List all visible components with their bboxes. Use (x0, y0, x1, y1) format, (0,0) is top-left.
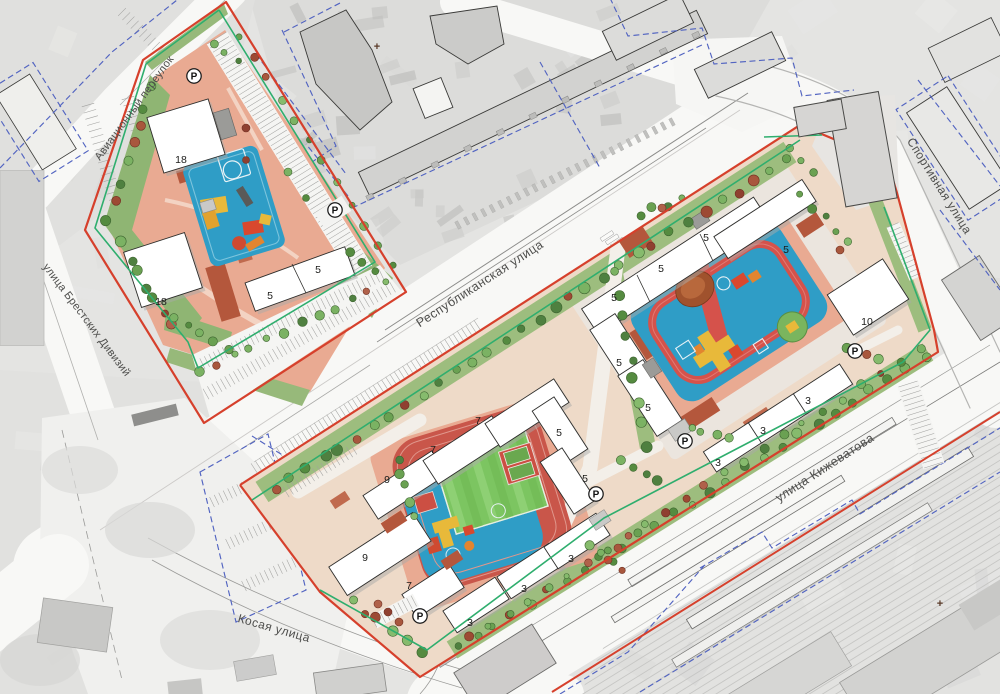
svg-text:P: P (332, 206, 339, 217)
svg-text:5: 5 (616, 357, 622, 369)
svg-text:5: 5 (611, 292, 617, 304)
svg-text:5: 5 (783, 244, 789, 256)
svg-text:3: 3 (521, 583, 527, 595)
svg-text:18: 18 (175, 154, 187, 166)
svg-text:9: 9 (362, 552, 368, 564)
svg-text:3: 3 (568, 553, 574, 565)
svg-text:3: 3 (467, 617, 473, 629)
svg-text:P: P (852, 347, 859, 358)
svg-text:P: P (593, 490, 600, 501)
svg-text:9: 9 (384, 474, 390, 486)
svg-text:P: P (682, 437, 689, 448)
svg-text:5: 5 (645, 402, 651, 414)
svg-text:18: 18 (155, 296, 167, 308)
svg-text:5: 5 (267, 290, 273, 302)
svg-text:+: + (374, 41, 380, 53)
svg-text:3: 3 (760, 425, 766, 437)
svg-text:5: 5 (658, 263, 664, 275)
svg-text:5: 5 (556, 427, 562, 439)
svg-text:3: 3 (715, 457, 721, 469)
svg-text:P: P (191, 72, 198, 83)
svg-text:3: 3 (805, 395, 811, 407)
svg-text:P: P (417, 612, 424, 623)
svg-text:7: 7 (406, 580, 412, 592)
svg-text:5: 5 (703, 232, 709, 244)
svg-text:10: 10 (861, 316, 873, 328)
svg-text:+: + (937, 598, 943, 610)
svg-text:5: 5 (582, 473, 588, 485)
svg-text:5: 5 (315, 264, 321, 276)
svg-text:7: 7 (475, 415, 481, 427)
svg-text:7: 7 (430, 444, 436, 456)
